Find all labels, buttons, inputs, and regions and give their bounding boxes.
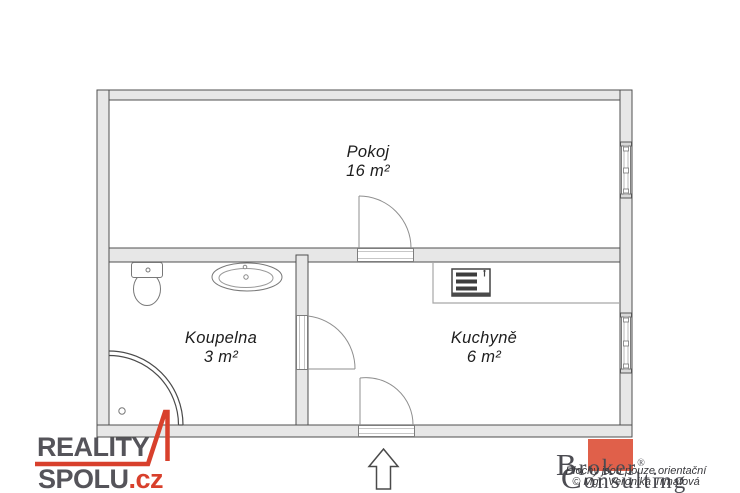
reality-spolu-word1: REALITY [37, 436, 149, 458]
window-kuchyne [621, 313, 632, 373]
sink-icon [212, 263, 282, 291]
room-label-kuchyne: Kuchyně 6 m² [451, 329, 517, 367]
shower-icon [109, 351, 183, 425]
room-area: 6 m² [451, 348, 517, 367]
room-name: Koupelna [185, 329, 257, 348]
room-label-pokoj: Pokoj 16 m² [346, 143, 390, 181]
door-opening-pokoj [358, 249, 414, 262]
wall-top [97, 90, 632, 100]
door-opening-entrance [359, 426, 415, 437]
room-name: Pokoj [346, 143, 390, 162]
room-area: 3 m² [185, 348, 257, 367]
reality-spolu-tld: .cz [129, 464, 164, 493]
entrance-arrow-icon [369, 449, 398, 489]
window-pokoj [621, 142, 632, 198]
wall-left [97, 90, 109, 437]
disclaimer-line2: © Mgr. Veronika Trmatová [558, 477, 714, 488]
floorplan-image: Pokoj 16 m² Koupelna 3 m² Kuchyně 6 m² R… [0, 0, 740, 493]
toilet-icon [132, 263, 163, 306]
door-swings [308, 196, 413, 425]
disclaimer-text: Plochy jsou pouze orientační © Mgr. Vero… [558, 466, 714, 488]
door-openings [297, 249, 415, 437]
stove-icon [452, 269, 490, 296]
room-name: Kuchyně [451, 329, 517, 348]
door-swing-entrance [360, 378, 413, 425]
floorplan-drawing [0, 0, 740, 493]
door-swing-koupelna [308, 316, 355, 369]
reality-spolu-word2: SPOLU.cz [38, 468, 163, 490]
room-area: 16 m² [346, 162, 390, 181]
door-swing-pokoj [359, 196, 411, 248]
door-opening-koupelna [297, 316, 308, 370]
room-label-koupelna: Koupelna 3 m² [185, 329, 257, 367]
